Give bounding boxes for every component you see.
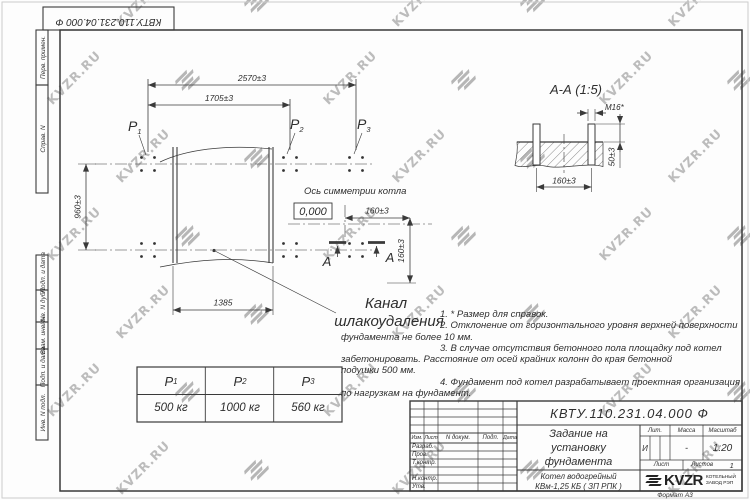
dim-left-label: 1705±3 — [205, 93, 234, 103]
point-p2-label: P2 — [290, 116, 304, 134]
loads-table-value-p3: 560 кг — [274, 395, 342, 421]
title-block-sheets-value: 1 — [730, 461, 734, 470]
title-block-sign-prov: Пров. — [412, 452, 438, 460]
title-block-mass-label: Масса — [670, 425, 703, 436]
side-label-sprav-n: Справ. N — [40, 125, 47, 153]
dim-overall-label: 2570±3 — [237, 73, 267, 83]
note-line: фундамента не более 10 мм. — [341, 332, 743, 343]
title-block-doc-number: КВТУ.110.231.04.000 Ф — [517, 401, 742, 425]
title-block-title: Задание на установку фундамента — [517, 427, 640, 470]
bolt-size-label: М16* — [605, 103, 625, 112]
point-p3-label: P3 — [357, 116, 371, 134]
format-label: Формат А3 — [600, 492, 750, 499]
note-line: 1. * Размер для справок. — [341, 309, 743, 320]
dim-height-label: 960±3 — [73, 195, 83, 219]
title-block-header-list: Лист — [424, 433, 438, 443]
note-line: забетонировать. Расстояние от осей крайн… — [341, 354, 743, 365]
section-letter-right: А — [385, 250, 395, 265]
side-label-perv-primen: Перв. примен. — [40, 36, 47, 79]
title-block-product: Котел водогрейный КВм-1,25 КБ ( ЗП РПК ) — [517, 472, 640, 491]
point-p1-label: P1 — [128, 118, 142, 136]
kvzr-logo-icon — [646, 474, 661, 488]
title-block-mass-value: - — [670, 436, 703, 460]
title-block-scale-value: 1:20 — [703, 436, 742, 460]
dim-offset-v-label: 160±3 — [396, 239, 406, 263]
note-line: 3. В случае отсутствия бетонного пола пл… — [341, 343, 743, 354]
drawing-canvas: КВТУ.110.231.04.000 Ф Перв. примен. Спра… — [0, 0, 750, 500]
title-block-sheets-label: Листов — [691, 462, 713, 468]
section-dim-spacing-label: 160±3 — [552, 176, 576, 186]
note-line: 2. Отклонение от горизонтального уровня … — [341, 320, 743, 331]
title-block-header-doc: N докум. — [438, 433, 478, 443]
note-line: подушки 500 мм. — [341, 365, 743, 376]
title-block-sign-blank — [412, 468, 438, 476]
title-block-sign-razrab: Разраб. — [412, 444, 438, 452]
title-block-header-izm: Изм. — [410, 433, 424, 443]
brand-text: KVZR — [664, 472, 703, 489]
title-block-sign-tkontr: Т.контр. — [412, 460, 438, 468]
plan-view-lines — [78, 79, 432, 315]
section-dim-protrusion-label: 50±3 — [607, 147, 617, 166]
title-block-sheets-cell: Листов 1 — [683, 460, 742, 470]
company-name: КОТЕЛЬНЫЙ ЗАВОД РЭП — [706, 475, 736, 486]
title-block-sheet-label: Лист — [640, 460, 683, 470]
loads-table-header-p3: P3 — [274, 368, 342, 394]
loads-table-value-p2: 1000 кг — [206, 395, 274, 421]
elevation-value: 0,000 — [299, 206, 327, 218]
loads-table-header-p1: P1 — [137, 368, 205, 394]
title-block-lit-label: Лит. — [640, 425, 670, 436]
dim-channel-label: 1385 — [214, 298, 233, 308]
drawing-sheet: { "watermark": { "text": "KVZR.RU" }, "t… — [0, 0, 750, 500]
section-letter-left: А — [322, 254, 332, 269]
loads-table-value-p1: 500 кг — [137, 395, 205, 421]
title-block-scale-label: Масштаб — [703, 425, 742, 436]
title-block-header-data: Дата — [503, 433, 517, 443]
title-block-logo-cell: KVZR КОТЕЛЬНЫЙ ЗАВОД РЭП — [640, 470, 742, 491]
title-block-lit-value: И — [640, 436, 650, 460]
section-view-title: А-А (1:5) — [549, 82, 602, 97]
title-block-sign-nkontr: Н.контр. — [412, 476, 438, 484]
dim-offset-h-label: 160±3 — [365, 206, 389, 216]
note-line: по нагрузкам на фундамент. — [341, 388, 743, 399]
side-label-podp-data-1: Подп. и дата — [39, 252, 47, 293]
side-label-inv-podl: Инв. N подл. — [39, 393, 47, 431]
top-margin-doc-number: КВТУ.110.231.04.000 Ф — [56, 16, 162, 27]
notes-block: 1. * Размер для справок. 2. Отклонение о… — [341, 309, 743, 399]
side-label-podp-data-2: Подп. и дата — [39, 346, 47, 387]
title-block-header-podp: Подп. — [478, 433, 503, 443]
boiler-axis-label: Ось симметрии котла — [304, 186, 406, 197]
note-line: 4. Фундамент под котел разрабатывает про… — [341, 377, 743, 388]
loads-table-header-p2: P2 — [206, 368, 274, 394]
title-block-sign-utv: Утв. — [412, 484, 438, 492]
